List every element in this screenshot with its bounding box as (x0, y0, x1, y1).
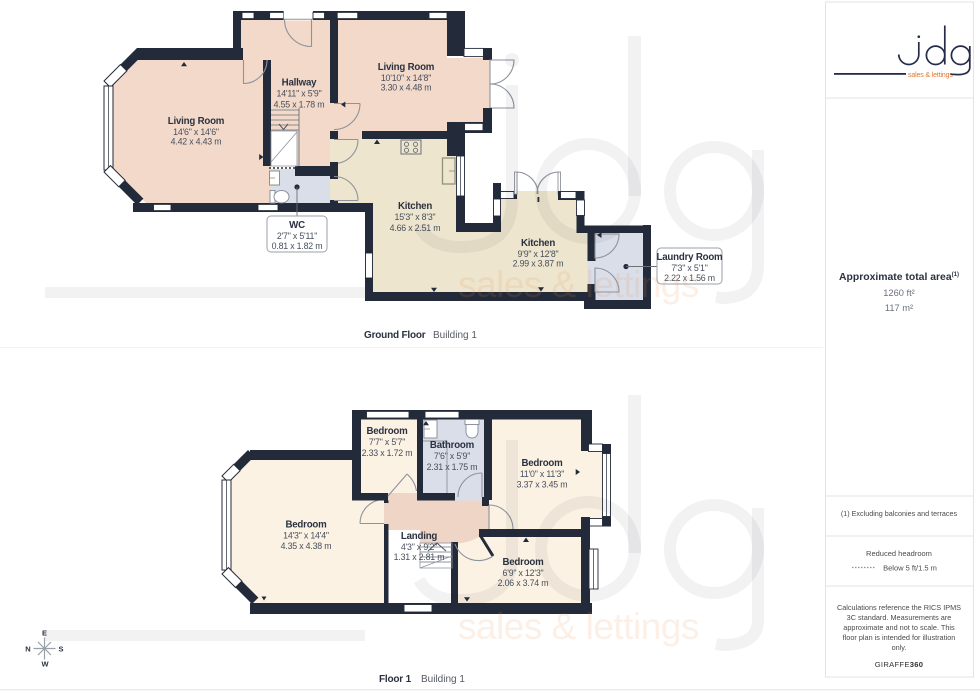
svg-text:Below 5 ft/1.5 m: Below 5 ft/1.5 m (883, 564, 937, 573)
svg-text:7'7" x 5'7": 7'7" x 5'7" (369, 437, 405, 447)
svg-text:sales & lettings: sales & lettings (908, 72, 953, 79)
svg-text:W: W (41, 660, 49, 669)
svg-text:1.31 x 2.81 m: 1.31 x 2.81 m (394, 552, 445, 562)
svg-text:Reduced headroom: Reduced headroom (866, 549, 932, 558)
svg-text:7'6" x 5'9": 7'6" x 5'9" (434, 451, 470, 461)
svg-text:4'3" x 9'2": 4'3" x 9'2" (401, 542, 437, 552)
svg-text:0.81 x 1.82 m: 0.81 x 1.82 m (272, 241, 323, 251)
svg-text:3.37 x 3.45 m: 3.37 x 3.45 m (517, 480, 568, 490)
svg-text:4.35 x 4.38 m: 4.35 x 4.38 m (281, 541, 332, 551)
svg-text:10'10" x 14'8": 10'10" x 14'8" (381, 73, 431, 83)
svg-text:(1) Excluding balconies and te: (1) Excluding balconies and terraces (841, 509, 958, 518)
svg-text:2.31 x 1.75 m: 2.31 x 1.75 m (427, 462, 478, 472)
svg-text:3C standard. Measurements are: 3C standard. Measurements are (847, 613, 952, 622)
svg-text:Bathroom: Bathroom (430, 440, 475, 451)
svg-text:117 m²: 117 m² (885, 303, 913, 313)
svg-text:N: N (25, 645, 30, 654)
svg-text:Bedroom: Bedroom (285, 520, 327, 531)
svg-text:sales & lettings: sales & lettings (458, 606, 699, 647)
svg-text:15'3" x 8'3": 15'3" x 8'3" (395, 212, 436, 222)
svg-text:sales & lettings: sales & lettings (458, 264, 699, 305)
svg-text:Living Room: Living Room (378, 62, 435, 73)
svg-text:14'3" x 14'4": 14'3" x 14'4" (283, 531, 329, 541)
svg-text:only.: only. (892, 643, 907, 652)
svg-text:4.66 x 2.51 m: 4.66 x 2.51 m (390, 223, 441, 233)
svg-text:3.30 x 4.48 m: 3.30 x 4.48 m (381, 83, 432, 93)
svg-text:Living Room: Living Room (168, 116, 225, 127)
svg-text:Landing: Landing (401, 531, 438, 542)
svg-text:Building 1: Building 1 (433, 330, 477, 341)
svg-text:14'11" x 5'9": 14'11" x 5'9" (277, 89, 322, 99)
svg-text:Kitchen: Kitchen (521, 238, 555, 249)
svg-text:Approximate total area(1): Approximate total area(1) (839, 272, 959, 283)
svg-text:4.42 x 4.43 m: 4.42 x 4.43 m (171, 137, 222, 147)
svg-text:Laundry Room: Laundry Room (657, 252, 724, 263)
svg-text:Floor 1: Floor 1 (379, 674, 412, 685)
svg-text:11'0" x 11'3": 11'0" x 11'3" (520, 469, 564, 479)
svg-text:Bedroom: Bedroom (521, 458, 563, 469)
svg-text:E: E (42, 629, 47, 638)
svg-text:4.55 x 1.78 m: 4.55 x 1.78 m (274, 100, 325, 110)
svg-text:Kitchen: Kitchen (398, 201, 432, 212)
svg-text:Calculations reference the RIC: Calculations reference the RICS IPMS (837, 603, 961, 612)
svg-text:Hallway: Hallway (282, 78, 317, 89)
svg-text:GIRAFFE360: GIRAFFE360 (875, 660, 924, 669)
svg-text:2'7" x 5'11": 2'7" x 5'11" (277, 231, 317, 241)
svg-text:Bedroom: Bedroom (366, 426, 408, 437)
svg-text:approximate and not to scale.: approximate and not to scale. This (843, 623, 955, 632)
svg-text:Building 1: Building 1 (421, 674, 465, 685)
svg-text:WC: WC (289, 220, 305, 231)
svg-text:Ground Floor: Ground Floor (364, 330, 426, 341)
svg-text:1260 ft²: 1260 ft² (883, 288, 915, 298)
svg-text:2.33 x 1.72 m: 2.33 x 1.72 m (362, 448, 413, 458)
svg-text:9'9" x 12'8": 9'9" x 12'8" (518, 249, 559, 259)
svg-text:14'6" x 14'6": 14'6" x 14'6" (173, 127, 219, 137)
svg-text:S: S (58, 645, 63, 654)
svg-text:floor plan is intended for ill: floor plan is intended for illustration (843, 633, 956, 642)
